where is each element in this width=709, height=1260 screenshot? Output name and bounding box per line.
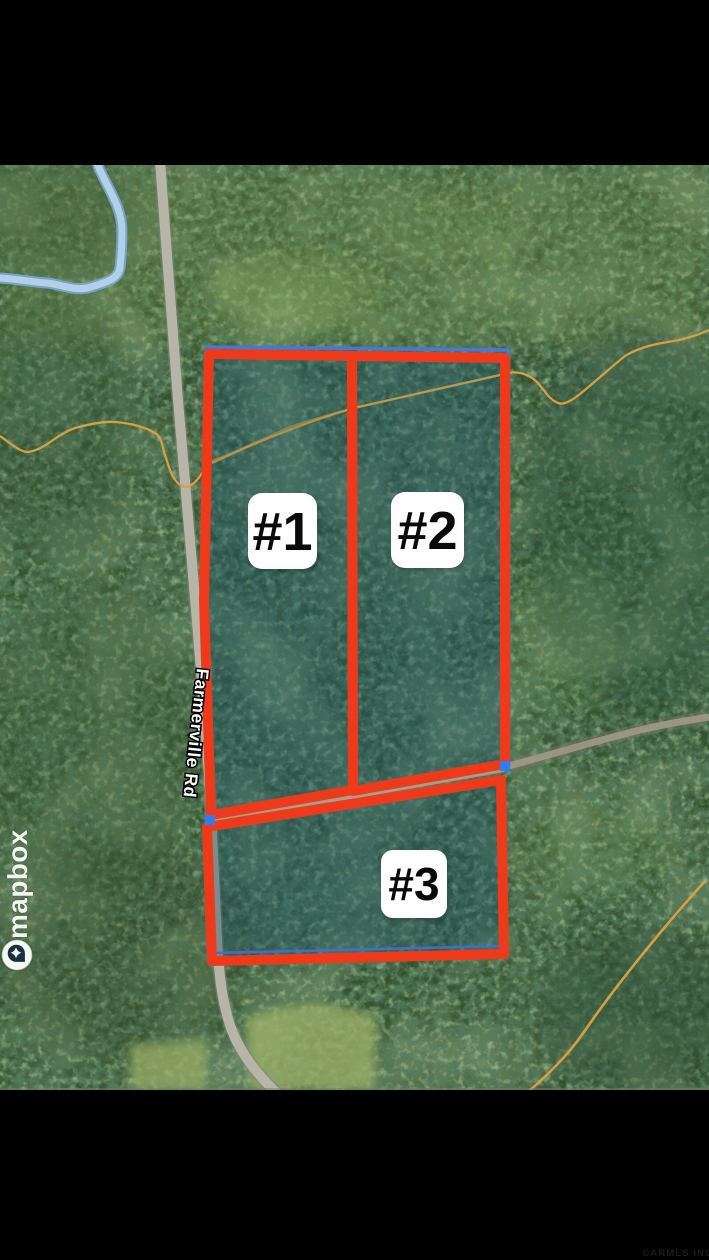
svg-text:mapbox: mapbox (2, 829, 33, 939)
svg-text:#3: #3 (388, 858, 439, 910)
svg-text:#1: #1 (252, 502, 312, 562)
svg-text:#2: #2 (397, 501, 457, 561)
svg-text:CARMLS INC: CARMLS INC (642, 1248, 709, 1259)
